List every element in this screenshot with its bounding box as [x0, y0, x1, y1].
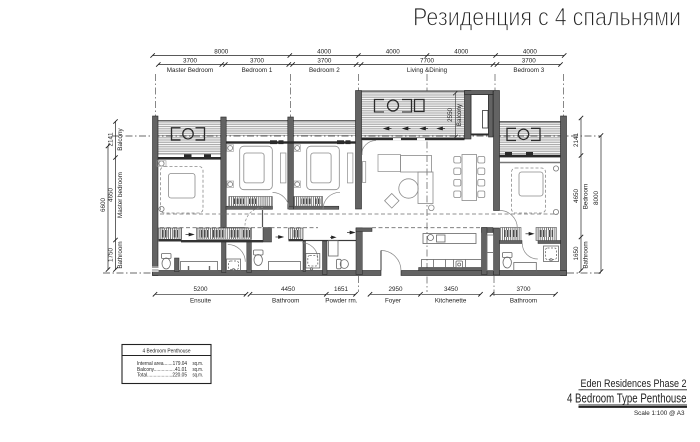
svg-text:Резиденция с 4 спальнями: Резиденция с 4 спальнями [413, 4, 681, 32]
svg-text:3700: 3700 [317, 58, 332, 65]
svg-text:4450: 4450 [281, 286, 296, 293]
svg-text:Bathroom: Bathroom [510, 298, 537, 305]
svg-text:4 Bedroom Type Penthouse: 4 Bedroom Type Penthouse [567, 391, 687, 406]
svg-text:3700: 3700 [522, 58, 537, 65]
svg-text:Bedroom 1: Bedroom 1 [242, 67, 273, 74]
svg-text:Total...................220.05: Total...................220.05 [137, 372, 187, 378]
svg-text:4000: 4000 [317, 49, 332, 56]
svg-text:Balcony: Balcony [456, 103, 463, 126]
svg-text:7700: 7700 [420, 58, 435, 65]
svg-text:2550: 2550 [447, 108, 454, 123]
svg-text:8000: 8000 [593, 191, 600, 206]
svg-text:Bedroom 2: Bedroom 2 [309, 67, 340, 74]
svg-text:1650: 1650 [573, 246, 580, 261]
svg-text:4000: 4000 [523, 49, 538, 56]
svg-text:2950: 2950 [388, 286, 403, 293]
svg-text:Living &Dining: Living &Dining [407, 67, 448, 74]
svg-text:Kitchenette: Kitchenette [435, 298, 467, 305]
svg-text:3700: 3700 [250, 58, 265, 65]
svg-text:1750: 1750 [108, 248, 115, 263]
svg-text:Balcony: Balcony [117, 127, 124, 150]
svg-text:sq.m.: sq.m. [193, 372, 204, 378]
svg-text:3700: 3700 [183, 58, 198, 65]
svg-text:Powder rm.: Powder rm. [325, 298, 357, 305]
svg-text:Scale 1:100 @ A3: Scale 1:100 @ A3 [634, 410, 685, 417]
svg-text:Bathroom: Bathroom [272, 298, 299, 305]
svg-text:5200: 5200 [193, 286, 208, 293]
svg-text:1651: 1651 [334, 286, 349, 293]
svg-text:8000: 8000 [214, 49, 229, 56]
svg-text:Master bedroom: Master bedroom [117, 172, 124, 218]
svg-text:6600: 6600 [100, 198, 107, 213]
svg-text:Bedroom: Bedroom [583, 184, 590, 210]
svg-text:4000: 4000 [386, 49, 401, 56]
svg-text:4650: 4650 [108, 188, 115, 203]
svg-text:Foyer: Foyer [385, 298, 401, 305]
svg-text:3700: 3700 [516, 286, 531, 293]
svg-text:Master Bedroom: Master Bedroom [167, 67, 214, 74]
svg-text:Bathroom: Bathroom [117, 241, 124, 268]
svg-text:Bedroom 3: Bedroom 3 [513, 67, 544, 74]
svg-text:Ensuite: Ensuite [190, 298, 212, 305]
svg-text:Eden Residences Phase 2: Eden Residences Phase 2 [581, 378, 687, 390]
svg-text:4000: 4000 [454, 49, 469, 56]
svg-text:4650: 4650 [573, 189, 580, 204]
svg-text:4 Bedroom Penthouse: 4 Bedroom Penthouse [143, 349, 191, 355]
svg-text:Bathroom: Bathroom [583, 241, 590, 268]
svg-text:3450: 3450 [444, 286, 459, 293]
svg-text:2141: 2141 [573, 133, 580, 148]
svg-text:2141: 2141 [108, 132, 115, 147]
